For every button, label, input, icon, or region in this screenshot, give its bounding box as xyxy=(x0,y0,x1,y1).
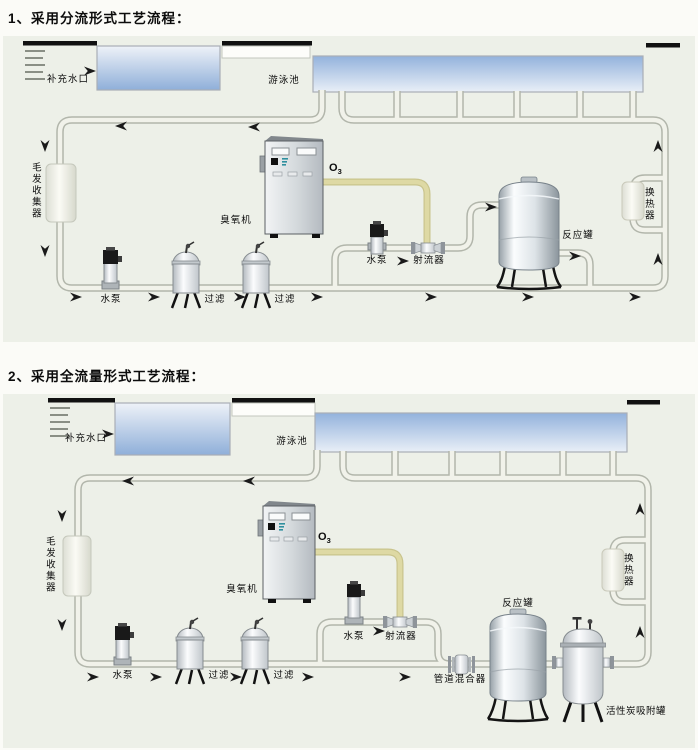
diagram1-title: 1、采用分流形式工艺流程： xyxy=(8,7,191,27)
pool-deck xyxy=(222,46,310,58)
reaction-tank xyxy=(488,609,548,721)
o3-symbol: O xyxy=(329,162,338,174)
diagram1-equipment xyxy=(46,136,644,308)
balance-tank-water xyxy=(97,46,220,90)
label-pump-main: 水泵 xyxy=(96,295,126,306)
o3-symbol: O xyxy=(318,531,327,543)
label-filter-1: 过滤 xyxy=(200,295,230,306)
pool-water xyxy=(315,413,627,452)
water-pump xyxy=(368,221,388,254)
deck-bar xyxy=(48,398,115,403)
pool-deck xyxy=(232,403,315,416)
filter-vessel xyxy=(172,242,200,308)
filter-vessel xyxy=(176,618,204,684)
pipeline-mixer xyxy=(448,655,475,674)
label-pool: 游泳池 xyxy=(262,76,306,87)
label-filter-2: 过滤 xyxy=(269,671,299,682)
ozone-generator xyxy=(260,136,323,238)
hair-collector xyxy=(46,164,76,222)
water-pump xyxy=(345,581,365,624)
o3-subscript: 3 xyxy=(338,167,342,176)
label-makeup-inlet: 补充水口 xyxy=(42,75,94,86)
water-pump xyxy=(102,247,122,289)
process-flow-sheet: 1、采用分流形式工艺流程： 2、采用全流量形式工艺流程： 补充水口 游泳池 毛发… xyxy=(0,0,698,750)
diagram2-equipment xyxy=(63,501,624,722)
label-filter-1: 过滤 xyxy=(204,671,234,682)
balance-tank-water xyxy=(115,403,230,455)
ejector-device xyxy=(383,616,417,628)
label-ozone-generator: 臭氧机 xyxy=(216,216,256,227)
label-pool: 游泳池 xyxy=(270,437,314,448)
pool-water xyxy=(313,56,643,92)
ozone-generator xyxy=(258,501,315,603)
deck-bar xyxy=(222,41,312,46)
deck-bar xyxy=(232,398,315,403)
label-pump-branch: 水泵 xyxy=(339,632,369,643)
deck-bar xyxy=(627,400,660,405)
diagram2-graphics xyxy=(48,398,660,722)
filter-vessel xyxy=(241,618,269,684)
label-heat-exchanger: 换热器 xyxy=(621,550,632,590)
heat-exchanger xyxy=(622,182,644,220)
diagram2-pools xyxy=(48,398,660,455)
label-hair-collector: 毛发收集器 xyxy=(43,535,54,595)
label-heat-exchanger: 换热器 xyxy=(642,184,653,224)
deck-bar xyxy=(646,43,680,48)
label-o3: O3 xyxy=(318,531,331,545)
deck-bar xyxy=(23,41,97,46)
o3-subscript: 3 xyxy=(327,536,331,545)
ejector-device xyxy=(411,242,445,254)
inlet-grate xyxy=(50,408,70,436)
label-ozone-generator: 臭氧机 xyxy=(222,585,262,596)
label-pipeline-mixer: 管道混合器 xyxy=(431,675,489,686)
label-reaction-tank: 反应罐 xyxy=(558,231,598,242)
label-carbon-tank: 活性炭吸附罐 xyxy=(602,707,670,718)
label-ejector: 射流器 xyxy=(381,632,421,643)
water-pump xyxy=(114,623,134,665)
label-pump-branch: 水泵 xyxy=(362,256,392,267)
label-reaction-tank: 反应罐 xyxy=(498,599,538,610)
label-filter-2: 过滤 xyxy=(270,295,300,306)
diagram2-title: 2、采用全流量形式工艺流程： xyxy=(8,365,205,385)
label-ejector: 射流器 xyxy=(409,256,449,267)
label-hair-collector: 毛发收集器 xyxy=(29,161,40,221)
label-o3: O3 xyxy=(329,162,342,176)
hair-collector xyxy=(63,536,91,596)
diagram1-graphics xyxy=(23,41,680,308)
label-makeup-inlet: 补充水口 xyxy=(60,434,112,445)
label-pump-main: 水泵 xyxy=(108,671,138,682)
filter-vessel xyxy=(242,242,270,308)
diagram1-pools xyxy=(23,41,680,92)
reaction-tank xyxy=(497,177,561,289)
